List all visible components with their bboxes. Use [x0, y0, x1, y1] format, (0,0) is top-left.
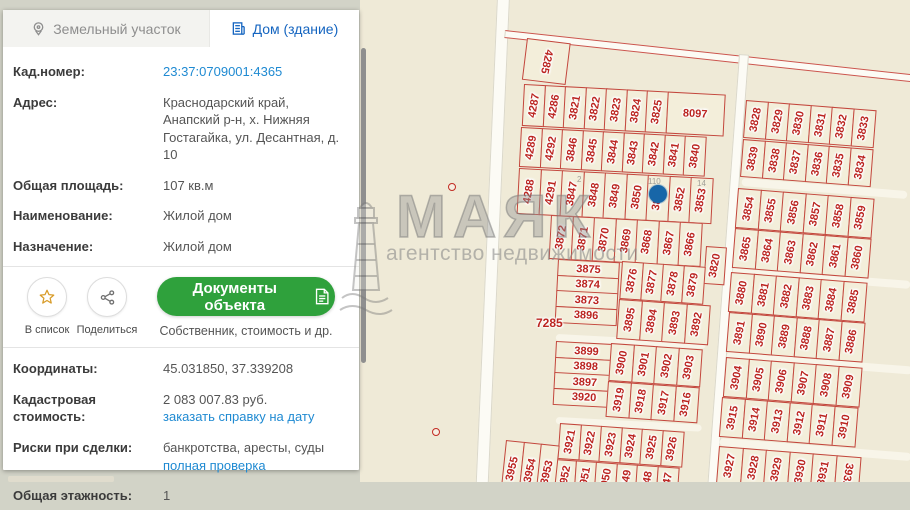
- field-link[interactable]: 23:37:0709001:4365: [163, 63, 345, 81]
- parcel-number: 3823: [608, 97, 624, 123]
- tab-land-parcel[interactable]: Земельный участок: [3, 10, 210, 47]
- parcel[interactable]: 3892: [684, 304, 711, 346]
- parcel-number: 3901: [636, 351, 652, 377]
- tab-label: Дом (здание): [253, 21, 339, 37]
- parcel-number: 3828: [748, 107, 765, 133]
- parcel-number: 3890: [754, 321, 771, 347]
- field-text: Краснодарский край, Анапский р-н, х. Ниж…: [163, 94, 345, 164]
- parcel-number: 3906: [773, 368, 790, 394]
- add-to-list-action: В список: [17, 277, 77, 336]
- parcel-number: 3896: [574, 309, 599, 322]
- parcel-number: 3864: [760, 237, 777, 263]
- parcel-block: 4285: [522, 38, 569, 85]
- parcel-block: 3820: [703, 246, 725, 285]
- parcel-number: 3852: [672, 186, 688, 212]
- parcel-number: 3912: [791, 410, 808, 436]
- field-text: 45.031850, 37.339208: [163, 360, 345, 378]
- parcel-number: 3915: [724, 405, 741, 431]
- parcel-number: 3889: [776, 323, 793, 349]
- parcel-number: 3867: [661, 230, 677, 256]
- parcel-number: 3888: [798, 325, 815, 351]
- add-to-list-button[interactable]: [27, 277, 67, 317]
- parcel-number: 3950: [597, 467, 613, 482]
- parcel-number: 3878: [664, 270, 680, 296]
- parcel-number: 3886: [843, 329, 860, 355]
- parcel-number: 3830: [791, 110, 808, 136]
- parcel-number: 3841: [666, 142, 682, 168]
- parcel[interactable]: 3886: [838, 321, 865, 363]
- field-label: Кадастровая стоимость:: [13, 391, 163, 426]
- parcel-number: 3829: [769, 108, 786, 134]
- field-text: 2 083 007.83 руб.: [163, 391, 345, 409]
- parcel-number: 3869: [618, 228, 634, 254]
- parcel[interactable]: 3947: [655, 466, 679, 482]
- parcel-number: 3831: [812, 112, 829, 138]
- parcel-number: 3832: [833, 113, 850, 139]
- parcel-number: 3820: [707, 253, 723, 279]
- parcel[interactable]: 3879: [681, 265, 706, 304]
- field-label: Адрес:: [13, 94, 163, 164]
- parcel-number: 3845: [584, 138, 600, 164]
- field-text: банкротства, аресты, суды: [163, 439, 345, 457]
- documents-subtitle: Собственник, стоимость и др.: [159, 324, 332, 338]
- parcel[interactable]: 3834: [847, 147, 873, 187]
- parcel-number: 3872: [553, 224, 569, 250]
- parcel-number: 3903: [681, 354, 697, 380]
- parcel-number: 3833: [855, 115, 872, 141]
- parcel-number: 3922: [582, 430, 598, 456]
- parcel-number: 3883: [800, 285, 817, 311]
- field-row: Координаты:45.031850, 37.339208: [3, 352, 359, 383]
- field-label: Кад.номер:: [13, 63, 163, 81]
- parcel-number: 3924: [623, 433, 639, 459]
- parcel[interactable]: 3926: [660, 430, 684, 467]
- field-label: Общая площадь:: [13, 177, 163, 195]
- parcel-number: 3837: [788, 149, 805, 175]
- parcel-number: 3921: [561, 429, 577, 455]
- field-text: 107 кв.м: [163, 177, 345, 195]
- map-pin-icon: [31, 21, 46, 36]
- tab-building[interactable]: Дом (здание): [210, 10, 359, 47]
- parcel-number: 3858: [830, 203, 847, 229]
- map-point-marker: [448, 183, 456, 191]
- field-row: Наименование:Жилой дом: [3, 199, 359, 230]
- field-value: банкротства, аресты, судыполная проверка: [163, 439, 345, 474]
- parcel-number: 3902: [658, 353, 674, 379]
- parcel-number: 3900: [613, 350, 629, 376]
- building-icon: [231, 21, 246, 36]
- parcel-number: 3885: [845, 289, 862, 315]
- parcel[interactable]: 3916: [673, 386, 699, 424]
- parcel-number: 3951: [577, 466, 593, 482]
- parcel-number: 3875: [576, 262, 601, 275]
- parcel-number: 3884: [823, 287, 840, 313]
- share-icon: [99, 289, 116, 306]
- star-icon: [38, 288, 56, 306]
- parcel-block: 3900390139023903: [608, 343, 700, 387]
- parcel-number: 3892: [689, 311, 705, 337]
- field-label: Координаты:: [13, 360, 163, 378]
- parcel-number: 3871: [575, 226, 591, 252]
- parcel-number: 3954: [521, 457, 538, 482]
- field-link[interactable]: заказать справку на дату: [163, 408, 345, 426]
- parcel-number: 3910: [836, 414, 853, 440]
- parcel-number: 3846: [564, 137, 580, 163]
- parcel[interactable]: 3910: [831, 406, 858, 448]
- object-fields-bottom: Координаты:45.031850, 37.339208Кадастров…: [3, 348, 359, 509]
- field-value: Краснодарский край, Анапский р-н, х. Ниж…: [163, 94, 345, 164]
- field-label: Риски при сделки:: [13, 439, 163, 474]
- parcel-number: 3835: [830, 152, 847, 178]
- parcel-number: 3844: [605, 139, 621, 165]
- parcel-number: 3953: [539, 459, 556, 482]
- parcel-number: 3847: [564, 181, 580, 207]
- parcel-number: 3880: [733, 280, 750, 306]
- parcel-number: 3917: [655, 390, 671, 416]
- actions-bar: В список Поделиться Документы объекта Со…: [3, 266, 359, 348]
- parcel[interactable]: 3932: [833, 455, 861, 482]
- parcel-number: 3925: [643, 434, 659, 460]
- parcel-number: 3929: [769, 456, 786, 482]
- tabs: Земельный участок Дом (здание): [3, 10, 359, 47]
- parcel[interactable]: 3949: [614, 463, 638, 482]
- parcel-number: 3870: [596, 227, 612, 253]
- parcel-number: 8097: [683, 107, 708, 120]
- field-label: Назначение:: [13, 238, 163, 256]
- parcel[interactable]: 3840: [683, 136, 707, 177]
- parcel[interactable]: 3948: [634, 465, 658, 482]
- parcel-number: 4288: [521, 178, 537, 204]
- house-number-label: 14: [697, 179, 706, 188]
- parcel-number: 3891: [731, 320, 748, 346]
- field-text: Жилой дом: [163, 207, 345, 225]
- parcel-number: 3893: [666, 310, 682, 336]
- parcel-number: 3887: [821, 327, 838, 353]
- parcel[interactable]: 3859: [847, 197, 874, 239]
- field-label: Общая этажность:: [13, 487, 163, 505]
- parcel-number: 3866: [682, 231, 698, 257]
- parcel-number: 3947: [659, 472, 675, 482]
- object-documents-button[interactable]: Документы объекта: [157, 277, 335, 316]
- parcel-block: 3895389438933892: [616, 299, 709, 345]
- document-icon: [315, 288, 329, 305]
- parcel-number: 3928: [745, 455, 762, 481]
- parcel-number: 3840: [687, 143, 703, 169]
- parcel-number: 3919: [610, 387, 626, 413]
- field-value: 2 083 007.83 руб.заказать справку на дат…: [163, 391, 345, 426]
- field-row: Кадастровая стоимость:2 083 007.83 руб.з…: [3, 383, 359, 431]
- parcel[interactable]: 3833: [850, 108, 876, 148]
- parcel-number: 4286: [546, 94, 562, 120]
- field-row: Общая этажность:1: [3, 479, 359, 510]
- field-value: 23:37:0709001:4365: [163, 63, 345, 81]
- parcel-number: 3824: [628, 98, 644, 124]
- parcel-number: 3876: [623, 268, 639, 294]
- parcel-number: 3874: [575, 278, 600, 291]
- parcel-number: 3905: [751, 366, 768, 392]
- field-row: Назначение:Жилой дом: [3, 230, 359, 261]
- parcel-number: 3926: [664, 436, 680, 462]
- share-action: Поделиться: [77, 277, 137, 336]
- parcel[interactable]: 3896: [555, 305, 618, 325]
- parcel-number: 3914: [747, 406, 764, 432]
- field-value: Жилой дом: [163, 238, 345, 256]
- field-text: Жилой дом: [163, 238, 345, 256]
- parcel[interactable]: 3885: [840, 281, 867, 323]
- parcel-number: 3863: [782, 239, 799, 265]
- parcel-number: 4285: [538, 48, 555, 74]
- parcel-number: 3918: [633, 388, 649, 414]
- parcel-number: 3952: [556, 465, 572, 482]
- parcel-number: 3857: [807, 201, 824, 227]
- parcel-number: 3899: [574, 344, 599, 357]
- map-point-marker: [432, 428, 440, 436]
- parcel-number: 3856: [785, 199, 802, 225]
- parcel-number: 3927: [722, 453, 739, 479]
- parcel-number: 3881: [756, 281, 773, 307]
- parcel-number: 3868: [639, 229, 655, 255]
- parcel-number: 3908: [818, 372, 835, 398]
- parcel-block: 3919391839173916: [605, 381, 697, 423]
- parcel-number: 3911: [814, 412, 831, 438]
- parcel-number: 3860: [849, 245, 866, 271]
- parcel-number: 3907: [795, 370, 812, 396]
- selected-building-marker[interactable]: [649, 185, 667, 203]
- parcel-number: 3877: [644, 269, 660, 295]
- parcel-block: 3875387438733896: [555, 259, 620, 324]
- parcel-number: 3909: [840, 374, 857, 400]
- parcel-number: 3879: [685, 272, 701, 298]
- parcel-number: 3931: [815, 460, 832, 482]
- field-row: Адрес:Краснодарский край, Анапский р-н, …: [3, 86, 359, 169]
- parcel-number: 3882: [778, 283, 795, 309]
- parcel-number: 3849: [607, 183, 623, 209]
- field-link[interactable]: полная проверка: [163, 457, 345, 475]
- parcel-number: 3821: [567, 95, 583, 121]
- parcel-number: 3913: [769, 408, 786, 434]
- parcel[interactable]: 3860: [844, 237, 871, 279]
- parcel-number: 3862: [804, 241, 821, 267]
- parcel[interactable]: 3950: [593, 462, 617, 482]
- documents-action: Документы объекта Собственник, стоимость…: [145, 277, 347, 338]
- parcel-number: 3853: [693, 187, 709, 213]
- parcel-number: 3836: [809, 151, 826, 177]
- parcel[interactable]: 3866: [678, 222, 703, 267]
- field-value: 45.031850, 37.339208: [163, 360, 345, 378]
- parcel-number: 3838: [766, 147, 783, 173]
- parcel[interactable]: 3820: [703, 246, 727, 285]
- parcel-number: 3861: [827, 243, 844, 269]
- add-to-list-label: В список: [25, 324, 70, 336]
- parcel-number: 3897: [572, 375, 597, 388]
- parcel-number: 4292: [543, 136, 559, 162]
- tab-label: Земельный участок: [53, 21, 180, 37]
- share-label: Поделиться: [77, 324, 138, 336]
- parcel[interactable]: 3903: [676, 348, 703, 388]
- parcel-number: 3859: [852, 205, 869, 231]
- parcel-number: 3873: [574, 293, 599, 306]
- house-number-label: 2: [577, 175, 581, 184]
- parcel-number: 3949: [618, 469, 634, 482]
- parcel-number: 4289: [523, 134, 539, 160]
- object-info-panel: Земельный участок Дом (здание) Кад.номер…: [3, 10, 359, 470]
- parcel-block: 395539543953: [500, 440, 558, 482]
- parcel-number: 3916: [678, 391, 694, 417]
- share-button[interactable]: [87, 277, 127, 317]
- parcel-number: 3822: [587, 96, 603, 122]
- parcel-number: 3948: [638, 470, 654, 482]
- field-value: Жилой дом: [163, 207, 345, 225]
- object-fields-top: Кад.номер:23:37:0709001:4365Адрес:Красно…: [3, 47, 359, 260]
- parcel-number: 3842: [646, 141, 662, 167]
- parcel-number: 3932: [839, 462, 855, 482]
- parcel-number-label: 7285: [536, 316, 563, 330]
- field-value: 107 кв.м: [163, 177, 345, 195]
- parcel-number: 3930: [792, 458, 809, 482]
- object-documents-label: Документы объекта: [163, 280, 307, 314]
- parcel-number: 4291: [543, 180, 559, 206]
- parcel-block: 3876387738783879: [619, 261, 703, 305]
- parcel-number: 3920: [572, 391, 597, 404]
- parcel[interactable]: 8097: [665, 92, 725, 137]
- panel-scrollbar[interactable]: [361, 48, 366, 363]
- parcel-number: 3894: [644, 308, 660, 334]
- field-row: Риски при сделки:банкротства, аресты, су…: [3, 431, 359, 479]
- parcel-number: 3825: [649, 99, 665, 125]
- parcel-number: 3904: [728, 365, 745, 391]
- parcel[interactable]: 4285: [522, 38, 571, 85]
- field-row: Кад.номер:23:37:0709001:4365: [3, 55, 359, 86]
- parcel[interactable]: 3909: [835, 366, 862, 408]
- parcel-number: 4287: [526, 92, 542, 118]
- parcel-number: 3848: [586, 182, 602, 208]
- parcel-number: 3895: [621, 307, 637, 333]
- parcel-number: 3898: [573, 360, 598, 373]
- parcel-number: 3834: [852, 154, 869, 180]
- parcel-number: 3854: [740, 196, 757, 222]
- field-row: Общая площадь:107 кв.м: [3, 169, 359, 200]
- field-value: 1: [163, 487, 345, 505]
- parcel-number: 3855: [763, 197, 780, 223]
- parcel-number: 3843: [625, 140, 641, 166]
- field-label: Наименование:: [13, 207, 163, 225]
- parcel-number: 3865: [737, 236, 754, 262]
- parcel-number: 3839: [745, 146, 762, 172]
- parcel-number: 3850: [629, 184, 645, 210]
- field-text: 1: [163, 487, 345, 505]
- parcel-number: 3923: [602, 431, 618, 457]
